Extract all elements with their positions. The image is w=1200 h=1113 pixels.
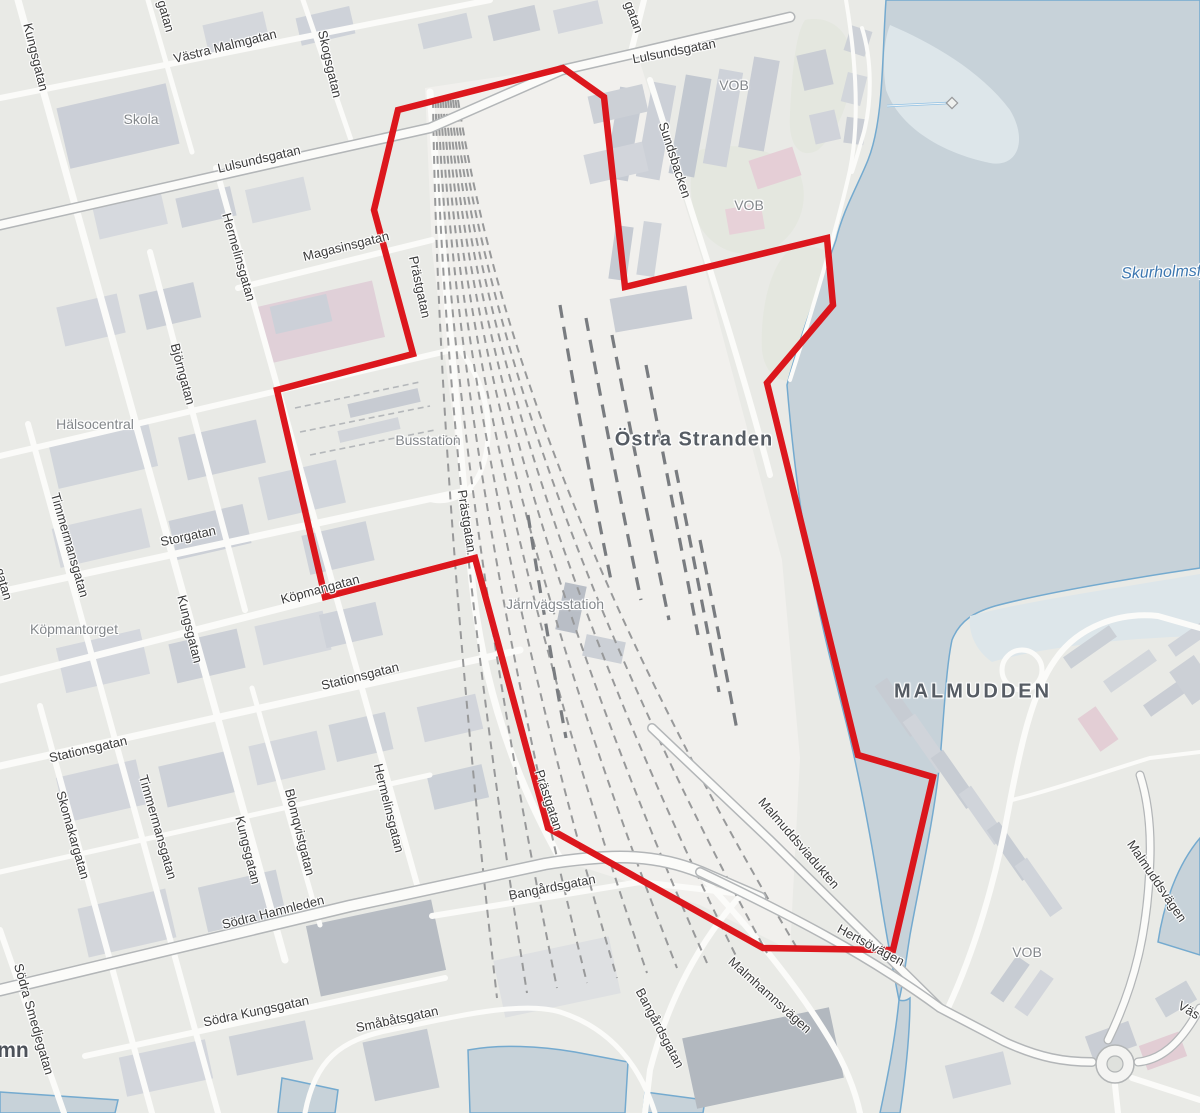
area-label-malmudden: MALMUDDEN [894,681,1052,704]
place-label-vob-north: VOB [719,77,749,93]
place-label-halsocentral: Hälsocentral [56,416,134,432]
place-label-jarnvagsstation: Järnvägsstation [506,596,604,612]
area-label-partial-hamn: mn [0,1039,29,1063]
place-label-vob-south: VOB [1012,944,1042,960]
place-label-skola: Skola [123,111,158,127]
roundabout [1096,1045,1134,1083]
place-label-vob-mid: VOB [734,197,764,213]
water-label-skurholmsfjarden: Skurholmsfj [1121,263,1200,284]
place-label-busstation: Busstation [395,432,460,448]
area-label-ostra-stranden: Östra Stranden [615,429,773,452]
map-canvas[interactable]: Kungsgatan Västra Malmgatan Skogsgatan L… [0,0,1200,1113]
place-label-kopmantorget: Köpmantorget [30,621,118,637]
